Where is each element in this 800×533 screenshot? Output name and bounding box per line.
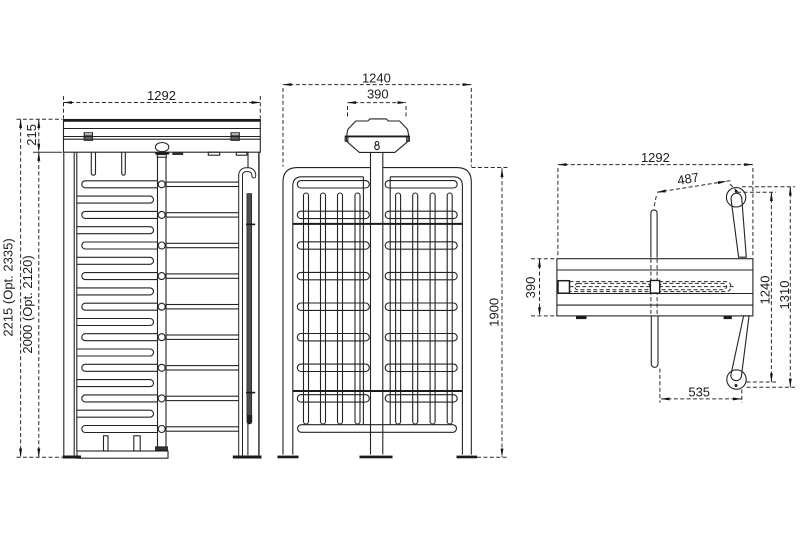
svg-text:1240: 1240 xyxy=(758,276,773,305)
svg-text:390: 390 xyxy=(367,87,389,102)
svg-text:1310: 1310 xyxy=(777,281,792,310)
svg-text:2215 (Opt. 2335): 2215 (Opt. 2335) xyxy=(0,238,15,336)
svg-text:1900: 1900 xyxy=(486,298,501,327)
svg-text:1240: 1240 xyxy=(362,71,391,86)
svg-text:535: 535 xyxy=(688,384,710,399)
svg-text:2000 (Opt. 2120): 2000 (Opt. 2120) xyxy=(20,255,35,353)
svg-text:215: 215 xyxy=(24,124,39,146)
svg-text:390: 390 xyxy=(523,277,538,299)
svg-text:1292: 1292 xyxy=(147,88,176,103)
svg-text:1292: 1292 xyxy=(641,150,670,165)
